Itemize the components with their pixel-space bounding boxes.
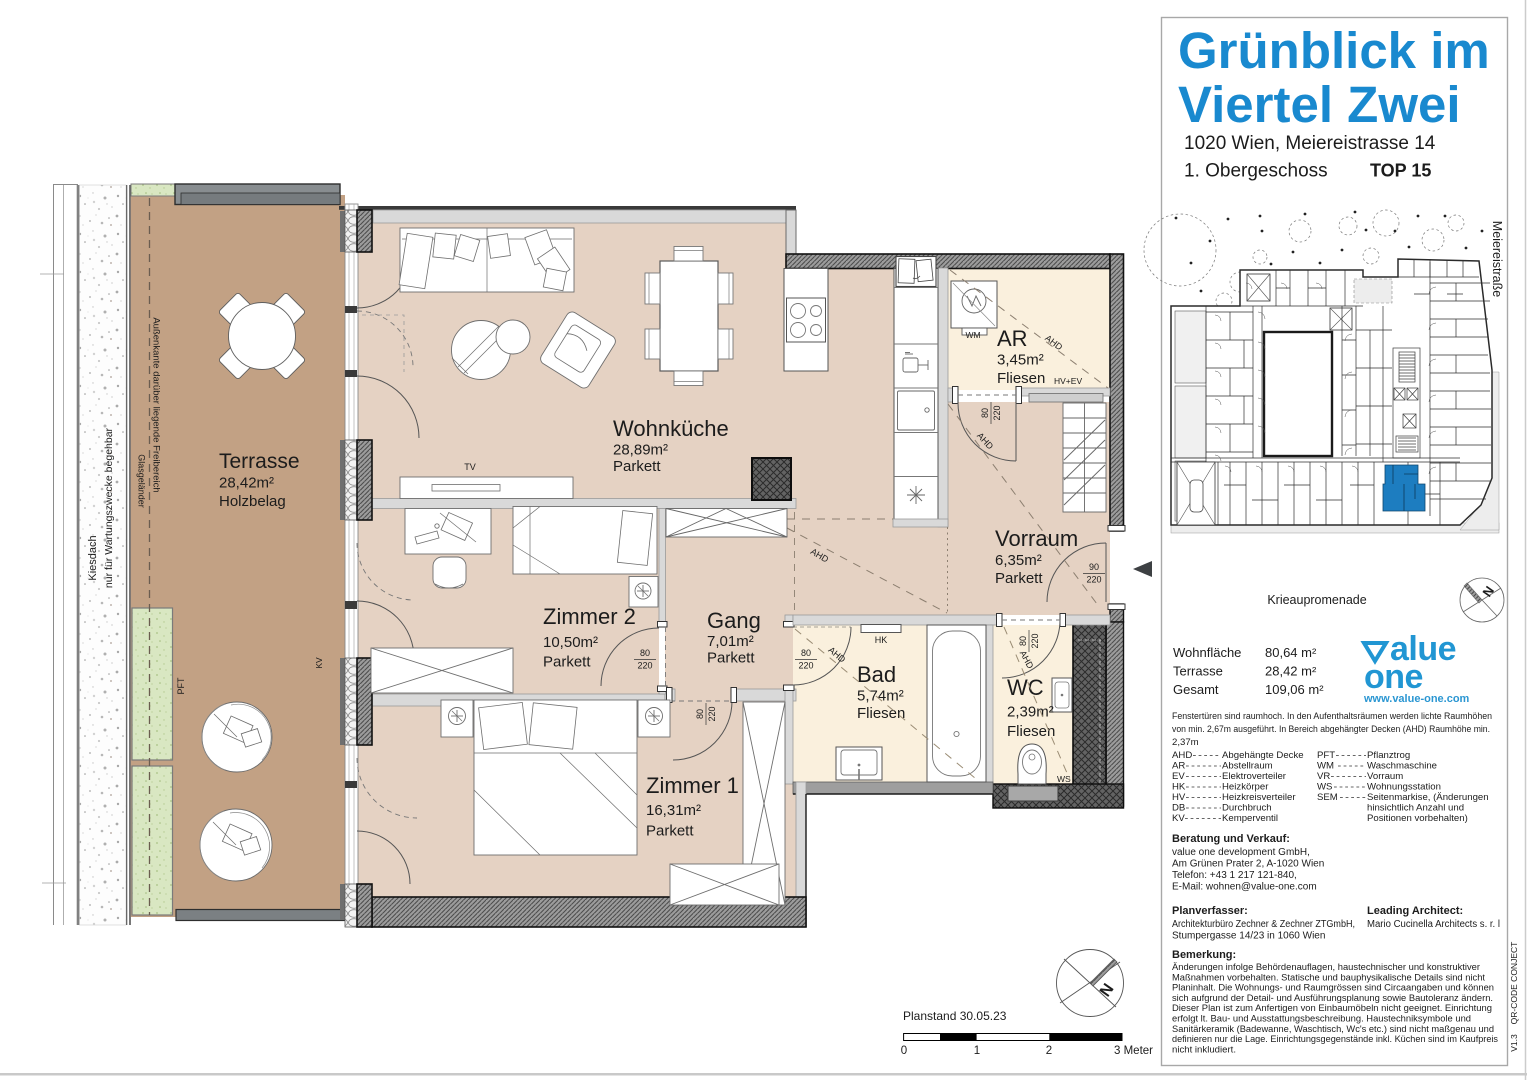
- svg-text:2,37m: 2,37m: [1172, 737, 1199, 748]
- svg-text:Fliesen: Fliesen: [857, 705, 905, 722]
- svg-text:Zimmer 2: Zimmer 2: [543, 604, 636, 629]
- svg-text:90: 90: [1089, 562, 1099, 572]
- svg-text:Parkett: Parkett: [613, 458, 661, 475]
- svg-text:HV: HV: [1172, 792, 1186, 803]
- svg-text:Kemperventil: Kemperventil: [1222, 813, 1278, 824]
- svg-text:220: 220: [637, 661, 652, 671]
- svg-text:Stumpergasse 14/23 in 1060 Wie: Stumpergasse 14/23 in 1060 Wien: [1172, 931, 1325, 942]
- svg-text:nur für Wartungszwecke begehba: nur für Wartungszwecke begehbar: [103, 427, 115, 588]
- svg-text:von min. 2,67m ausgeführt. In: von min. 2,67m ausgeführt. In Bereich ab…: [1172, 724, 1490, 735]
- svg-text:Planstand 30.05.23: Planstand 30.05.23: [903, 1009, 1007, 1023]
- svg-text:Abgehängte Decke: Abgehängte Decke: [1222, 750, 1304, 761]
- svg-text:Architekturbüro Zechner & Zech: Architekturbüro Zechner & Zechner ZTGmbH…: [1172, 919, 1355, 930]
- svg-text:Bad: Bad: [857, 662, 896, 687]
- svg-text:TV: TV: [464, 462, 476, 472]
- svg-text:Wohnungsstation: Wohnungsstation: [1367, 782, 1441, 793]
- svg-text:value one development GmbH,: value one development GmbH,: [1172, 847, 1310, 858]
- svg-text:6,35m²: 6,35m²: [995, 552, 1042, 569]
- svg-text:2,39m²: 2,39m²: [1007, 704, 1054, 721]
- svg-text:AHD: AHD: [1172, 750, 1192, 761]
- svg-text:Zimmer 1: Zimmer 1: [646, 773, 739, 798]
- svg-text:Kiesdach: Kiesdach: [87, 535, 99, 580]
- svg-text:220: 220: [1030, 633, 1040, 648]
- svg-text:16,31m²: 16,31m²: [646, 802, 701, 819]
- svg-text:Parkett: Parkett: [543, 654, 591, 671]
- svg-text:28,42 m²: 28,42 m²: [1265, 664, 1317, 679]
- svg-text:10,50m²: 10,50m²: [543, 634, 598, 651]
- svg-text:Parkett: Parkett: [995, 570, 1043, 587]
- svg-text:V1.3: V1.3: [1509, 1034, 1519, 1052]
- svg-text:Wohnküche: Wohnküche: [613, 416, 729, 441]
- svg-text:Mario Cucinella Architects s.: Mario Cucinella Architects s. r. l: [1367, 919, 1500, 930]
- svg-text:WM: WM: [1317, 761, 1334, 772]
- svg-text:0: 0: [901, 1045, 907, 1057]
- svg-text:Vorraum: Vorraum: [1367, 771, 1403, 782]
- svg-text:AR: AR: [997, 326, 1028, 351]
- svg-text:Vorraum: Vorraum: [995, 526, 1078, 551]
- svg-text:220: 220: [1086, 575, 1101, 585]
- svg-text:Wohnfläche: Wohnfläche: [1173, 645, 1241, 660]
- svg-text:3 Meter: 3 Meter: [1114, 1045, 1153, 1057]
- svg-text:Außenkante darüber liegende Fr: Außenkante darüber liegende Freibereich: [151, 317, 162, 492]
- svg-text:80: 80: [640, 648, 650, 658]
- svg-text:Heizkreisverteiler: Heizkreisverteiler: [1222, 792, 1296, 803]
- svg-text:Gang: Gang: [707, 608, 761, 633]
- svg-text:HV+EV: HV+EV: [1054, 376, 1082, 386]
- svg-text:PFT: PFT: [1317, 750, 1335, 761]
- svg-text:Glasgeländer: Glasgeländer: [137, 454, 147, 508]
- svg-text:28,42m²: 28,42m²: [219, 475, 274, 492]
- svg-text:Parkett: Parkett: [707, 650, 755, 667]
- svg-text:Heizkörper: Heizkörper: [1222, 782, 1269, 793]
- svg-text:HK: HK: [1172, 782, 1186, 793]
- svg-text:1. Obergeschoss: 1. Obergeschoss: [1184, 161, 1328, 182]
- svg-text:DB: DB: [1172, 803, 1185, 814]
- svg-text:1020 Wien, Meiereistrasse 14: 1020 Wien, Meiereistrasse 14: [1184, 133, 1436, 154]
- svg-text:80: 80: [695, 709, 705, 719]
- svg-text:hinsichtlich Anzahl und: hinsichtlich Anzahl und: [1367, 803, 1464, 814]
- svg-text:Meiereistraße: Meiereistraße: [1490, 221, 1504, 297]
- svg-text:Pflanztrog: Pflanztrog: [1367, 750, 1410, 761]
- svg-text:5,74m²: 5,74m²: [857, 688, 904, 705]
- svg-text:Telefon: +43 1 217 121-840,: Telefon: +43 1 217 121-840,: [1172, 870, 1297, 881]
- svg-text:Elektroverteiler: Elektroverteiler: [1222, 771, 1287, 782]
- svg-text:Seitenmarkise, (Änderungen: Seitenmarkise, (Änderungen: [1367, 792, 1489, 803]
- svg-text:WS: WS: [1317, 782, 1332, 793]
- svg-text:PFT: PFT: [176, 677, 186, 695]
- svg-text:QR-CODE CONJECT: QR-CODE CONJECT: [1509, 942, 1519, 1025]
- svg-text:Am Grünen Prater 2, A-1020 Wie: Am Grünen Prater 2, A-1020 Wien: [1172, 859, 1324, 870]
- svg-text:EV: EV: [1172, 771, 1185, 782]
- svg-text:7,01m²: 7,01m²: [707, 633, 754, 650]
- svg-text:WC: WC: [1007, 675, 1044, 700]
- svg-text:Viertel Zwei: Viertel Zwei: [1178, 76, 1461, 133]
- svg-text:Durchbruch: Durchbruch: [1222, 803, 1272, 814]
- svg-text:TOP 15: TOP 15: [1370, 161, 1431, 181]
- svg-text:2: 2: [1046, 1045, 1052, 1057]
- svg-text:1: 1: [974, 1045, 980, 1057]
- svg-text:80,64 m²: 80,64 m²: [1265, 645, 1317, 660]
- svg-text:SEM: SEM: [1317, 792, 1338, 803]
- svg-text:Grünblick im: Grünblick im: [1178, 22, 1490, 79]
- svg-text:Fenstertüren sind raumhoch. In: Fenstertüren sind raumhoch. In den Aufen…: [1172, 711, 1492, 722]
- svg-text:AR: AR: [1172, 761, 1185, 772]
- svg-text:220: 220: [798, 661, 813, 671]
- svg-text:Fliesen: Fliesen: [1007, 723, 1055, 740]
- svg-text:Holzbelag: Holzbelag: [219, 493, 286, 510]
- svg-text:KV: KV: [1172, 813, 1185, 824]
- svg-text:Terrasse: Terrasse: [1173, 664, 1223, 679]
- svg-text:KV: KV: [314, 657, 324, 669]
- svg-text:220: 220: [707, 706, 717, 721]
- svg-text:Terrasse: Terrasse: [219, 450, 300, 473]
- svg-text:Fliesen: Fliesen: [997, 370, 1045, 387]
- svg-text:Abstellraum: Abstellraum: [1222, 761, 1273, 772]
- svg-text:Leading Architect:: Leading Architect:: [1367, 905, 1463, 917]
- svg-text:3,45m²: 3,45m²: [997, 352, 1044, 369]
- svg-text:nicht inkludiert.: nicht inkludiert.: [1172, 1044, 1236, 1055]
- svg-text:109,06 m²: 109,06 m²: [1265, 682, 1324, 697]
- svg-text:Beratung und Verkauf:: Beratung und Verkauf:: [1172, 833, 1290, 845]
- svg-text:80: 80: [1018, 636, 1028, 646]
- svg-text:Positionen vorbehalten): Positionen vorbehalten): [1367, 813, 1468, 824]
- svg-text:E-Mail: wohnen@value-one.com: E-Mail: wohnen@value-one.com: [1172, 882, 1317, 893]
- svg-text:Gesamt: Gesamt: [1173, 682, 1219, 697]
- svg-text:HK: HK: [875, 635, 888, 645]
- svg-text:WM: WM: [965, 330, 980, 340]
- svg-text:www.value-one.com: www.value-one.com: [1363, 693, 1470, 705]
- svg-text:one: one: [1364, 658, 1423, 696]
- svg-text:Krieaupromenade: Krieaupromenade: [1267, 593, 1366, 607]
- svg-text:WS: WS: [1057, 774, 1071, 784]
- svg-text:80: 80: [980, 408, 990, 418]
- svg-text:Waschmaschine: Waschmaschine: [1367, 761, 1437, 772]
- svg-text:Parkett: Parkett: [646, 823, 694, 840]
- svg-text:220: 220: [992, 405, 1002, 420]
- svg-text:Planverfasser:: Planverfasser:: [1172, 905, 1248, 917]
- svg-text:28,89m²: 28,89m²: [613, 442, 668, 459]
- svg-text:Bemerkung:: Bemerkung:: [1172, 949, 1236, 961]
- svg-text:VR: VR: [1317, 771, 1330, 782]
- svg-text:80: 80: [801, 648, 811, 658]
